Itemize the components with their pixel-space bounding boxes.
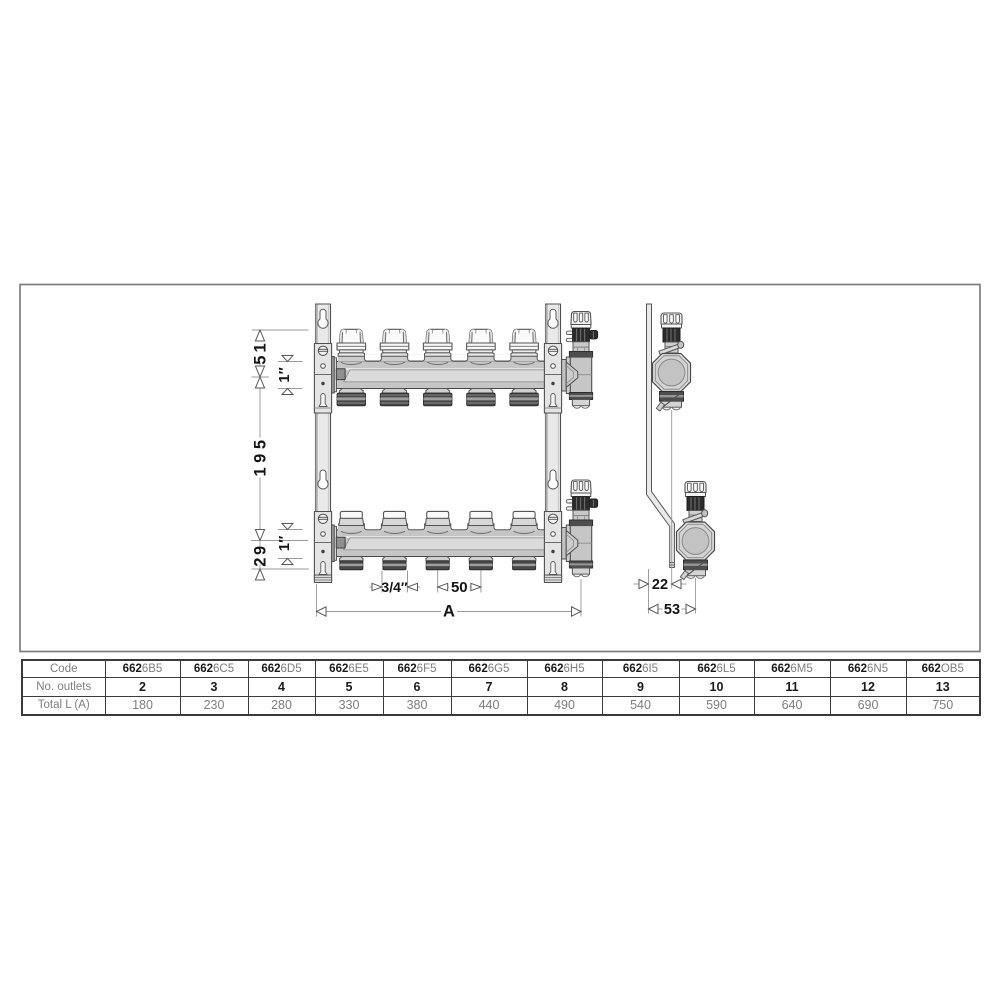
svg-text:1″: 1″ xyxy=(276,536,293,552)
svg-text:29: 29 xyxy=(252,543,270,566)
svg-text:51: 51 xyxy=(252,340,270,364)
svg-text:3/4″: 3/4″ xyxy=(381,579,407,595)
svg-text:53: 53 xyxy=(664,602,680,618)
svg-text:A: A xyxy=(443,603,455,621)
svg-text:195: 195 xyxy=(252,435,270,476)
svg-text:50: 50 xyxy=(451,579,468,596)
svg-text:22: 22 xyxy=(652,577,668,593)
svg-text:1″: 1″ xyxy=(276,367,293,383)
